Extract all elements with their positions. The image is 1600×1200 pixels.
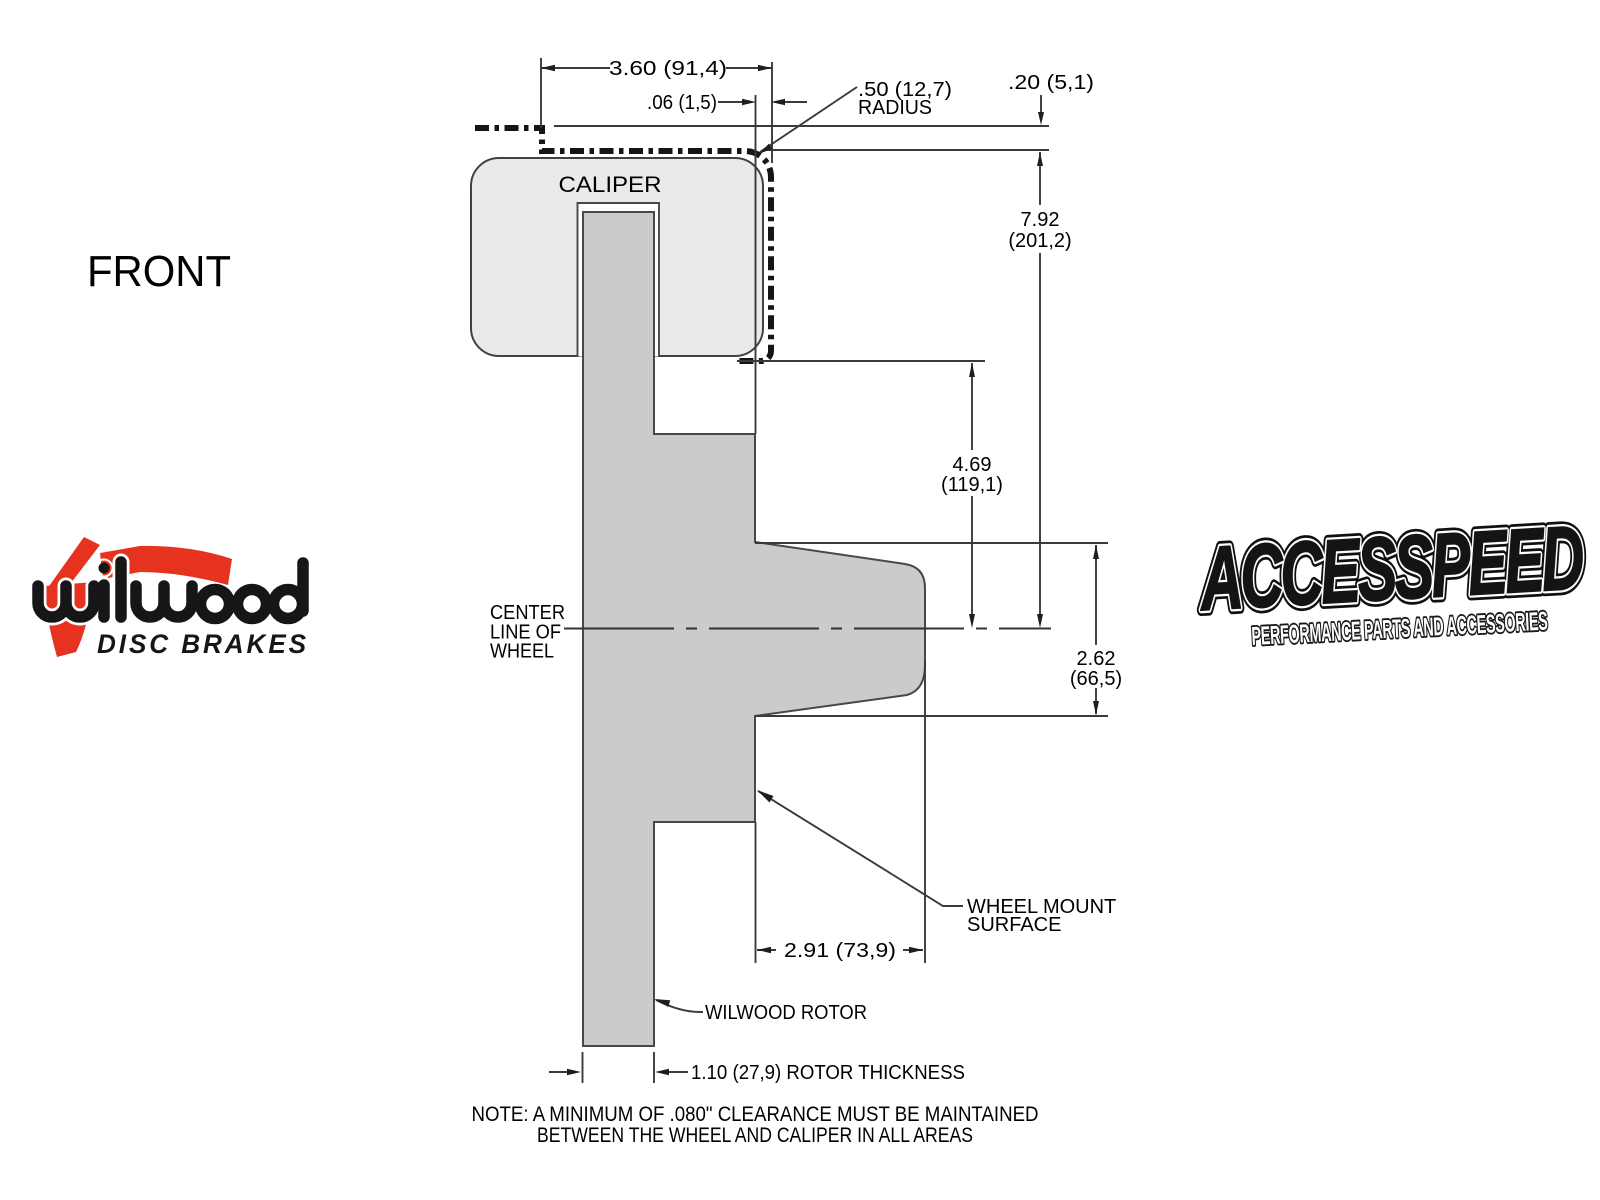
- svg-text:2.62: 2.62: [1077, 648, 1116, 670]
- svg-text:WHEEL: WHEEL: [490, 641, 554, 663]
- svg-text:.06 (1,5): .06 (1,5): [647, 92, 717, 114]
- svg-text:2.91 (73,9): 2.91 (73,9): [784, 940, 896, 962]
- svg-text:.20 (5,1): .20 (5,1): [1008, 72, 1094, 94]
- svg-text:BETWEEN THE WHEEL AND CALIPER: BETWEEN THE WHEEL AND CALIPER IN ALL ARE…: [537, 1124, 973, 1147]
- svg-text:RADIUS: RADIUS: [858, 97, 932, 119]
- svg-text:3.60 (91,4): 3.60 (91,4): [609, 58, 727, 80]
- svg-text:7.92: 7.92: [1021, 209, 1060, 231]
- svg-text:FRONT: FRONT: [87, 247, 231, 296]
- svg-text:(201,2): (201,2): [1008, 230, 1071, 252]
- svg-text:(66,5): (66,5): [1070, 668, 1122, 690]
- svg-text:DISC BRAKES: DISC BRAKES: [97, 629, 309, 659]
- svg-text:4.69: 4.69: [953, 454, 992, 476]
- svg-text:(119,1): (119,1): [941, 474, 1003, 496]
- svg-text:1.10 (27,9) ROTOR THICKNESS: 1.10 (27,9) ROTOR THICKNESS: [691, 1062, 965, 1084]
- svg-text:NOTE: A MINIMUM OF .080" CLEAR: NOTE: A MINIMUM OF .080" CLEARANCE MUST …: [472, 1103, 1039, 1126]
- svg-text:SURFACE: SURFACE: [967, 914, 1061, 936]
- svg-text:WILWOOD ROTOR: WILWOOD ROTOR: [705, 1002, 867, 1024]
- svg-text:CALIPER: CALIPER: [559, 172, 662, 197]
